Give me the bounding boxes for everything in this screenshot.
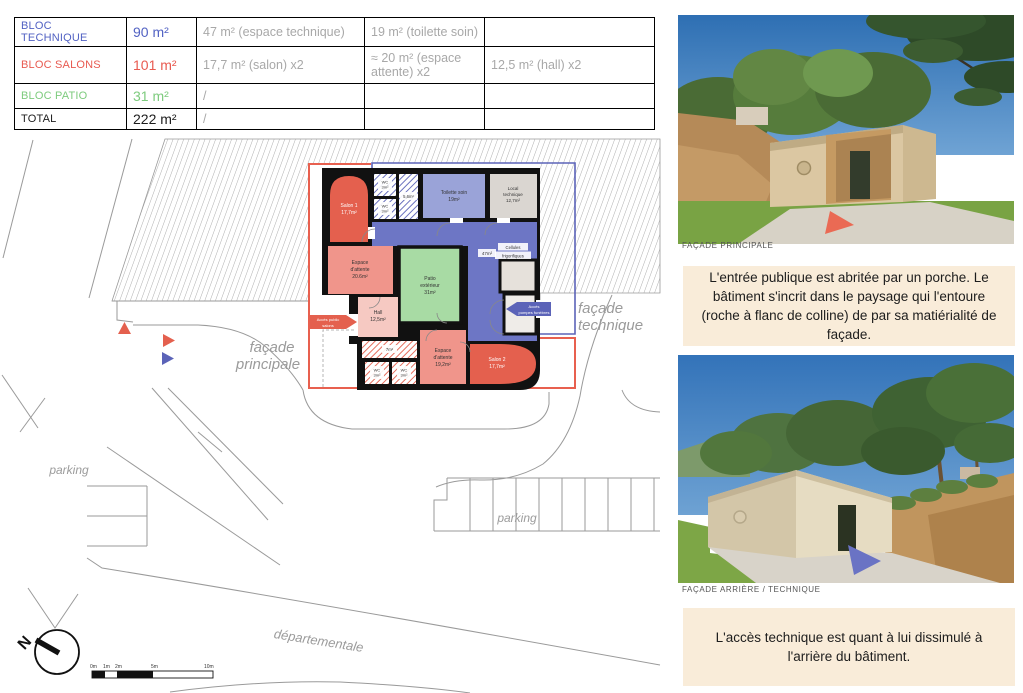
photo1-caption: FAÇADE PRINCIPALE (682, 241, 773, 250)
table-row: TOTAL 222 m² / (15, 109, 655, 130)
entrance-door (850, 151, 870, 199)
svg-text:10m: 10m (204, 664, 214, 670)
row-label: TOTAL (15, 109, 127, 130)
round-window (798, 162, 811, 175)
svg-text:technique: technique (578, 317, 643, 334)
svg-text:3m²: 3m² (382, 209, 390, 214)
presentation-page: { "table": { "rows": [ {"label":"BLOC TE… (0, 0, 1023, 693)
svg-text:Accès public: Accès public (317, 317, 339, 322)
svg-text:salons: salons (322, 323, 334, 328)
svg-text:12,5m²: 12,5m² (370, 317, 386, 323)
svg-text:3m²: 3m² (374, 373, 382, 378)
svg-text:17,7m²: 17,7m² (489, 364, 505, 370)
svg-text:7m²: 7m² (386, 347, 394, 352)
room-salon-1 (330, 176, 368, 242)
row-label: BLOC SALONS (15, 47, 127, 84)
entrance-marker-red-up (118, 322, 131, 334)
row-detail: 19 m² (toilette soin) (365, 18, 485, 47)
svg-text:d'attente: d'attente (433, 355, 452, 361)
row-value: 222 m² (127, 109, 197, 130)
svg-text:façade: façade (578, 300, 623, 317)
svg-text:façade: façade (249, 339, 294, 356)
svg-text:2m: 2m (115, 664, 122, 670)
svg-text:5m: 5m (151, 664, 158, 670)
row-detail: / (197, 109, 365, 130)
svg-text:Cellules: Cellules (506, 245, 521, 250)
row-detail (365, 84, 485, 109)
surface-table: BLOC TECHNIQUE 90 m² 47 m² (espace techn… (14, 17, 655, 130)
row-detail (485, 84, 655, 109)
photo2-caption: FAÇADE ARRIÈRE / TECHNIQUE (682, 585, 821, 594)
svg-text:20.6m²: 20.6m² (352, 274, 368, 280)
svg-text:parking: parking (496, 511, 537, 525)
north-compass: N (15, 630, 79, 674)
svg-text:19m²: 19m² (448, 197, 460, 203)
svg-text:47m²: 47m² (482, 251, 493, 256)
table-row: BLOC SALONS 101 m² 17,7 m² (salon) x2 ≈ … (15, 47, 655, 84)
row-detail (485, 18, 655, 47)
svg-text:19,2m²: 19,2m² (435, 362, 451, 368)
room-storage (500, 260, 536, 292)
svg-text:N: N (15, 633, 35, 653)
svg-text:1m: 1m (103, 664, 110, 670)
floor-plan-drawing: Salon 117,7m² WC3m² WC3m² 5,6m² Toilette… (0, 130, 670, 693)
svg-text:5,6m²: 5,6m² (403, 194, 414, 199)
svg-text:Local: Local (508, 186, 519, 191)
svg-text:Hall: Hall (374, 310, 383, 316)
table-row: BLOC PATIO 31 m² / (15, 84, 655, 109)
row-label: BLOC TECHNIQUE (15, 18, 127, 47)
site-plan: Salon 117,7m² WC3m² WC3m² 5,6m² Toilette… (0, 130, 670, 693)
row-detail: / (197, 84, 365, 109)
svg-text:extérieur: extérieur (420, 283, 440, 289)
note-text: L'accès technique est quant à lui dissim… (695, 628, 1003, 666)
svg-text:départementale: départementale (273, 626, 365, 655)
row-value: 90 m² (127, 18, 197, 47)
note-text: L'entrée publique est abritée par un por… (695, 268, 1003, 345)
svg-text:Espace: Espace (435, 348, 452, 354)
row-detail: ≈ 20 m² (espace attente) x2 (365, 47, 485, 84)
table-row: BLOC TECHNIQUE 90 m² 47 m² (espace techn… (15, 18, 655, 47)
note-entree-publique: L'entrée publique est abritée par un por… (683, 266, 1015, 346)
svg-text:d'attente: d'attente (350, 267, 369, 273)
row-value: 101 m² (127, 47, 197, 84)
photo-facade-arriere (678, 355, 1014, 583)
row-label: BLOC PATIO (15, 84, 127, 109)
entrance-marker-blue-right (162, 352, 174, 365)
svg-text:31m²: 31m² (424, 290, 436, 296)
svg-text:Patio: Patio (424, 276, 436, 282)
svg-text:parking: parking (48, 463, 89, 477)
row-detail (485, 109, 655, 130)
room-toilette-soin (423, 174, 485, 218)
svg-text:technique: technique (503, 192, 523, 197)
svg-text:pompes funèbres: pompes funèbres (519, 310, 550, 315)
note-acces-technique: L'accès technique est quant à lui dissim… (683, 608, 1015, 686)
row-detail (365, 109, 485, 130)
svg-text:0m: 0m (90, 664, 97, 670)
row-detail: 12,5 m² (hall) x2 (485, 47, 655, 84)
technical-door (838, 505, 856, 551)
entrance-marker-red-right (163, 334, 175, 347)
row-value: 31 m² (127, 84, 197, 109)
svg-text:Accès: Accès (529, 304, 540, 309)
svg-text:Espace: Espace (352, 260, 369, 266)
svg-text:Toilette soin: Toilette soin (441, 190, 468, 196)
row-detail: 17,7 m² (salon) x2 (197, 47, 365, 84)
svg-text:Salon 2: Salon 2 (489, 357, 506, 363)
svg-text:3m²: 3m² (382, 185, 390, 190)
svg-text:principale: principale (235, 356, 300, 373)
svg-text:17,7m²: 17,7m² (341, 210, 357, 216)
round-window (734, 511, 746, 523)
svg-text:12,7m²: 12,7m² (506, 198, 521, 203)
svg-text:3m²: 3m² (401, 373, 409, 378)
svg-text:Salon 1: Salon 1 (341, 203, 358, 209)
rock-outcrop (736, 107, 768, 125)
svg-text:frigorifiques: frigorifiques (502, 254, 524, 259)
scale-bar: 0m 1m 2m 5m 10m (90, 664, 214, 678)
row-detail: 47 m² (espace technique) (197, 18, 365, 47)
photo-facade-principale (678, 15, 1014, 244)
